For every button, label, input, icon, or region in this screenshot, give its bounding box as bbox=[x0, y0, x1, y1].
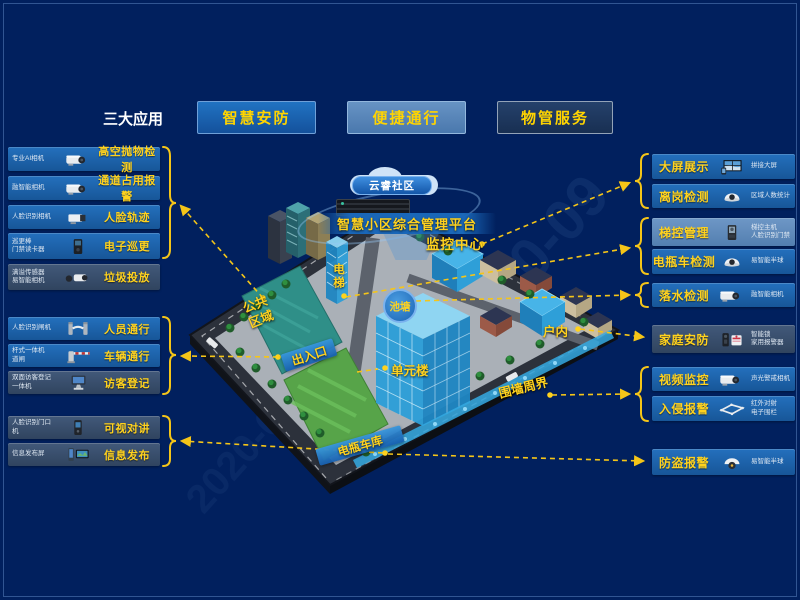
device-label: 声光警戒相机 bbox=[748, 375, 795, 383]
feature-row-high-altitude-throw: 专业AI相机 高空抛物检测 bbox=[8, 147, 160, 171]
device-label: 梯控主机 人脸识别门禁 bbox=[748, 224, 795, 241]
device-label: 区域人数统计 bbox=[748, 192, 795, 200]
device-label: 信息发布屏 bbox=[8, 450, 62, 458]
device-label: 双面访客登记 一体机 bbox=[8, 374, 62, 391]
platform-banner: 智慧小区综合管理平台 bbox=[318, 213, 496, 234]
feature-row-intrusion-alarm: 入侵报警 红外对射 电子围栏 bbox=[652, 396, 795, 421]
feature-label: 电瓶车检测 bbox=[652, 253, 716, 270]
feature-row-home-security: 家庭安防 智能锁 家用报警器 bbox=[652, 325, 795, 353]
map-label-monitor-center: 监控中心 bbox=[426, 233, 484, 253]
feature-label: 落水检测 bbox=[652, 287, 716, 304]
lock-alarm-icon bbox=[718, 331, 746, 348]
feature-label: 视频监控 bbox=[652, 371, 716, 388]
feature-row-vehicle-access: 杆式一体机 道闸 车辆通行 bbox=[8, 344, 160, 367]
feature-row-channel-occupancy: 融智能相机 通道占用报警 bbox=[8, 176, 160, 200]
feature-row-visitor-registration: 双面访客登记 一体机 访客登记 bbox=[8, 371, 160, 394]
fence-icon bbox=[718, 400, 746, 417]
cloud-community-badge: 云睿社区 bbox=[352, 176, 432, 195]
feature-label: 电子巡更 bbox=[94, 238, 160, 254]
feature-row-video-surveillance: 视频监控 声光警戒相机 bbox=[652, 367, 795, 391]
map-label-unit-building: 单元楼 bbox=[391, 360, 429, 379]
feature-row-ebike-detection: 电瓶车检测 易智能半球 bbox=[652, 249, 795, 274]
device-label: 融智能相机 bbox=[748, 291, 795, 299]
map-label-elevator: 电梯 bbox=[330, 263, 346, 290]
tab-smart-security[interactable]: 智慧安防 bbox=[197, 101, 316, 134]
device-label: 红外对射 电子围栏 bbox=[748, 400, 795, 417]
feature-label: 访客登记 bbox=[94, 375, 160, 391]
card-reader-icon bbox=[64, 238, 92, 255]
smart-community-dashboard: 2020-09 2020-09 三大应用 智慧安防 便捷通行 物管服务 专业AI… bbox=[0, 0, 800, 600]
signage-screen-icon bbox=[64, 446, 92, 463]
sensor-camera-icon bbox=[64, 269, 92, 286]
door-phone-icon bbox=[64, 419, 92, 436]
tab-property-service[interactable]: 物管服务 bbox=[497, 101, 613, 134]
page-title: 三大应用 bbox=[103, 108, 163, 129]
feature-label: 通道占用报警 bbox=[94, 172, 160, 204]
access-terminal-icon bbox=[718, 224, 746, 241]
bullet-camera-icon bbox=[718, 287, 746, 304]
bullet-camera-icon bbox=[64, 151, 92, 168]
device-label: 易智能半球 bbox=[748, 257, 795, 265]
device-label: 专业AI相机 bbox=[8, 155, 62, 163]
dome-camera-active-icon bbox=[718, 454, 746, 471]
feature-label: 可视对讲 bbox=[94, 420, 160, 436]
feature-row-pedestrian-access: 人脸识别闸机 人员通行 bbox=[8, 317, 160, 340]
feature-row-info-publish: 信息发布屏 信息发布 bbox=[8, 443, 160, 466]
map-label-indoor: 户内 bbox=[543, 321, 568, 340]
feature-row-e-patrol: 巡更棒 门禁读卡器 电子巡更 bbox=[8, 233, 160, 259]
feature-label: 车辆通行 bbox=[94, 348, 160, 364]
feature-row-absence-detection: 离岗检测 区域人数统计 bbox=[652, 184, 795, 208]
feature-label: 信息发布 bbox=[94, 447, 160, 463]
feature-row-elevator-control: 梯控管理 梯控主机 人脸识别门禁 bbox=[652, 218, 795, 246]
map-label-pond: 池塘 bbox=[383, 289, 417, 323]
video-wall-icon bbox=[718, 158, 746, 175]
feature-label: 梯控管理 bbox=[652, 224, 716, 241]
dome-camera-icon bbox=[718, 188, 746, 205]
feature-row-video-intercom: 人脸识别门口 机 可视对讲 bbox=[8, 416, 160, 439]
feature-label: 人脸轨迹 bbox=[94, 209, 160, 225]
box-camera-icon bbox=[64, 209, 92, 226]
bullet-camera-icon bbox=[64, 180, 92, 197]
feature-label: 家庭安防 bbox=[652, 331, 716, 348]
tab-convenient-access[interactable]: 便捷通行 bbox=[347, 101, 466, 134]
feature-label: 离岗检测 bbox=[652, 188, 716, 205]
device-label: 易智能半球 bbox=[748, 458, 795, 466]
feature-label: 人员通行 bbox=[94, 321, 160, 337]
device-label: 巡更棒 门禁读卡器 bbox=[8, 238, 62, 255]
device-label: 杆式一体机 道闸 bbox=[8, 347, 62, 364]
feature-row-drowning-detection: 落水检测 融智能相机 bbox=[652, 283, 795, 307]
feature-row-face-track: 人脸识别相机 人脸轨迹 bbox=[8, 205, 160, 229]
feature-row-burglar-alarm: 防盗报警 易智能半球 bbox=[652, 449, 795, 475]
bullet-camera-icon bbox=[718, 371, 746, 388]
turnstile-icon bbox=[64, 320, 92, 337]
feature-label: 垃圾投放 bbox=[94, 269, 160, 285]
feature-label: 大屏展示 bbox=[652, 158, 716, 175]
barrier-gate-icon bbox=[64, 347, 92, 364]
device-label: 拼接大屏 bbox=[748, 162, 795, 170]
feature-label: 防盗报警 bbox=[652, 454, 716, 471]
device-label: 智能锁 家用报警器 bbox=[748, 331, 795, 348]
feature-label: 入侵报警 bbox=[652, 400, 716, 417]
device-label: 人脸识别门口 机 bbox=[8, 419, 62, 436]
dome-camera-icon bbox=[718, 253, 746, 270]
feature-row-big-screen: 大屏展示 拼接大屏 bbox=[652, 154, 795, 179]
device-label: 融智能相机 bbox=[8, 184, 62, 192]
feature-row-garbage-disposal: 满溢传感器 易智能相机 垃圾投放 bbox=[8, 264, 160, 290]
device-label: 人脸识别闸机 bbox=[8, 324, 62, 332]
device-label: 满溢传感器 易智能相机 bbox=[8, 269, 62, 286]
feature-label: 高空抛物检测 bbox=[94, 143, 160, 175]
device-label: 人脸识别相机 bbox=[8, 213, 62, 221]
visitor-kiosk-icon bbox=[64, 374, 92, 391]
